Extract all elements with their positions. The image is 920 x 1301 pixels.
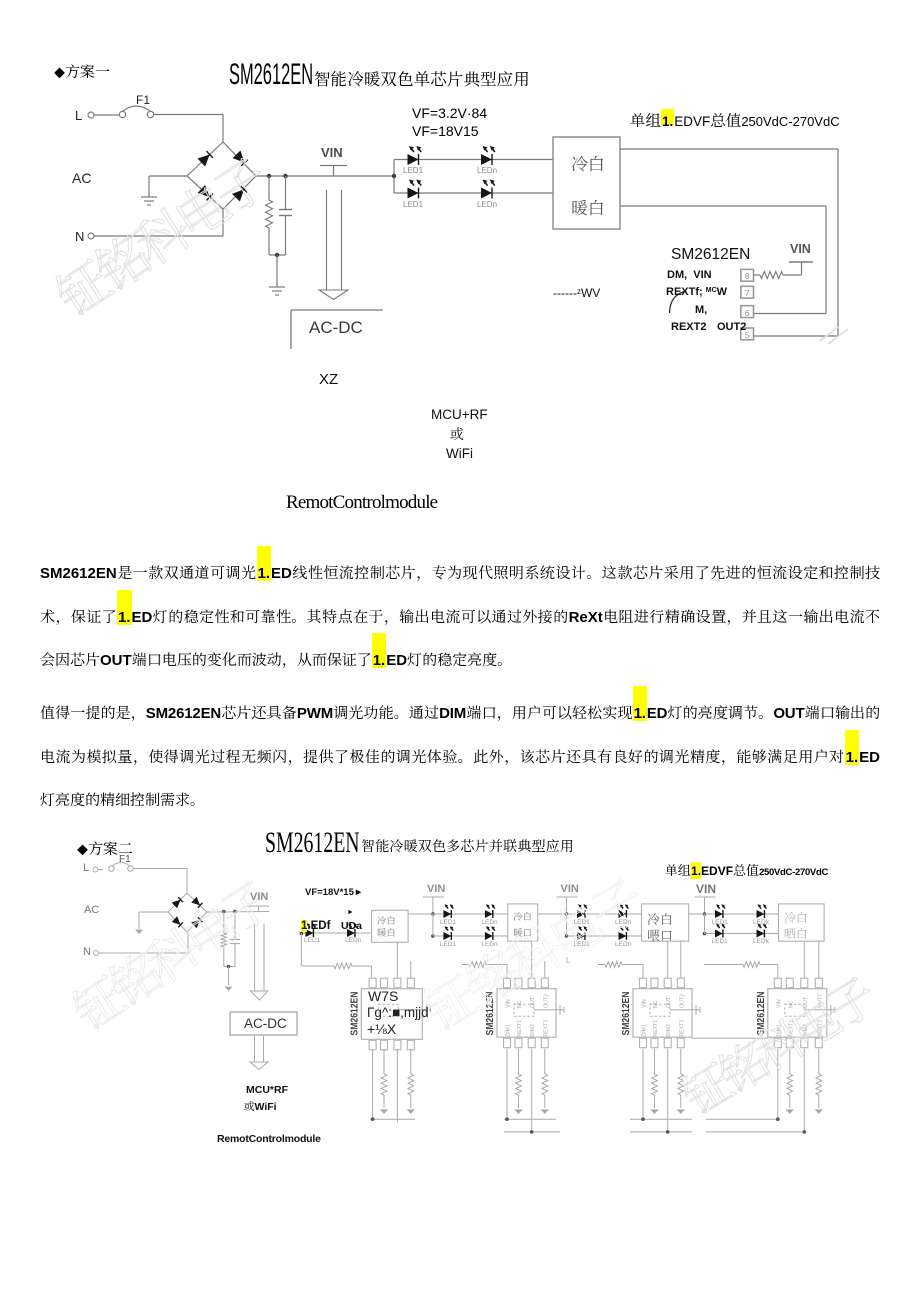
svg-text:DIM2: DIM2	[530, 1024, 536, 1037]
svg-text:OUT2: OUT2	[679, 994, 685, 1008]
svg-text:DIM1: DIM1	[506, 1024, 512, 1037]
svg-text:REXT2: REXT2	[543, 1020, 549, 1037]
svg-text:SM2612EN: SM2612EN	[350, 992, 361, 1036]
svg-text:NC: NC	[653, 1000, 659, 1008]
svg-text:DIM2: DIM2	[666, 1024, 672, 1037]
svg-text:OUT2: OUT2	[543, 994, 549, 1008]
svg-text:OUT: OUT	[530, 996, 536, 1008]
svg-text:REXT1: REXT1	[517, 1020, 523, 1037]
svg-text:VIN: VIN	[642, 999, 648, 1008]
svg-text:REXT2: REXT2	[679, 1020, 685, 1037]
svg-text:REXT1: REXT1	[653, 1020, 659, 1037]
svg-text:DIM1: DIM1	[642, 1024, 648, 1037]
svg-text:SM2612EN: SM2612EN	[621, 992, 632, 1036]
svg-text:OUT: OUT	[666, 996, 672, 1008]
